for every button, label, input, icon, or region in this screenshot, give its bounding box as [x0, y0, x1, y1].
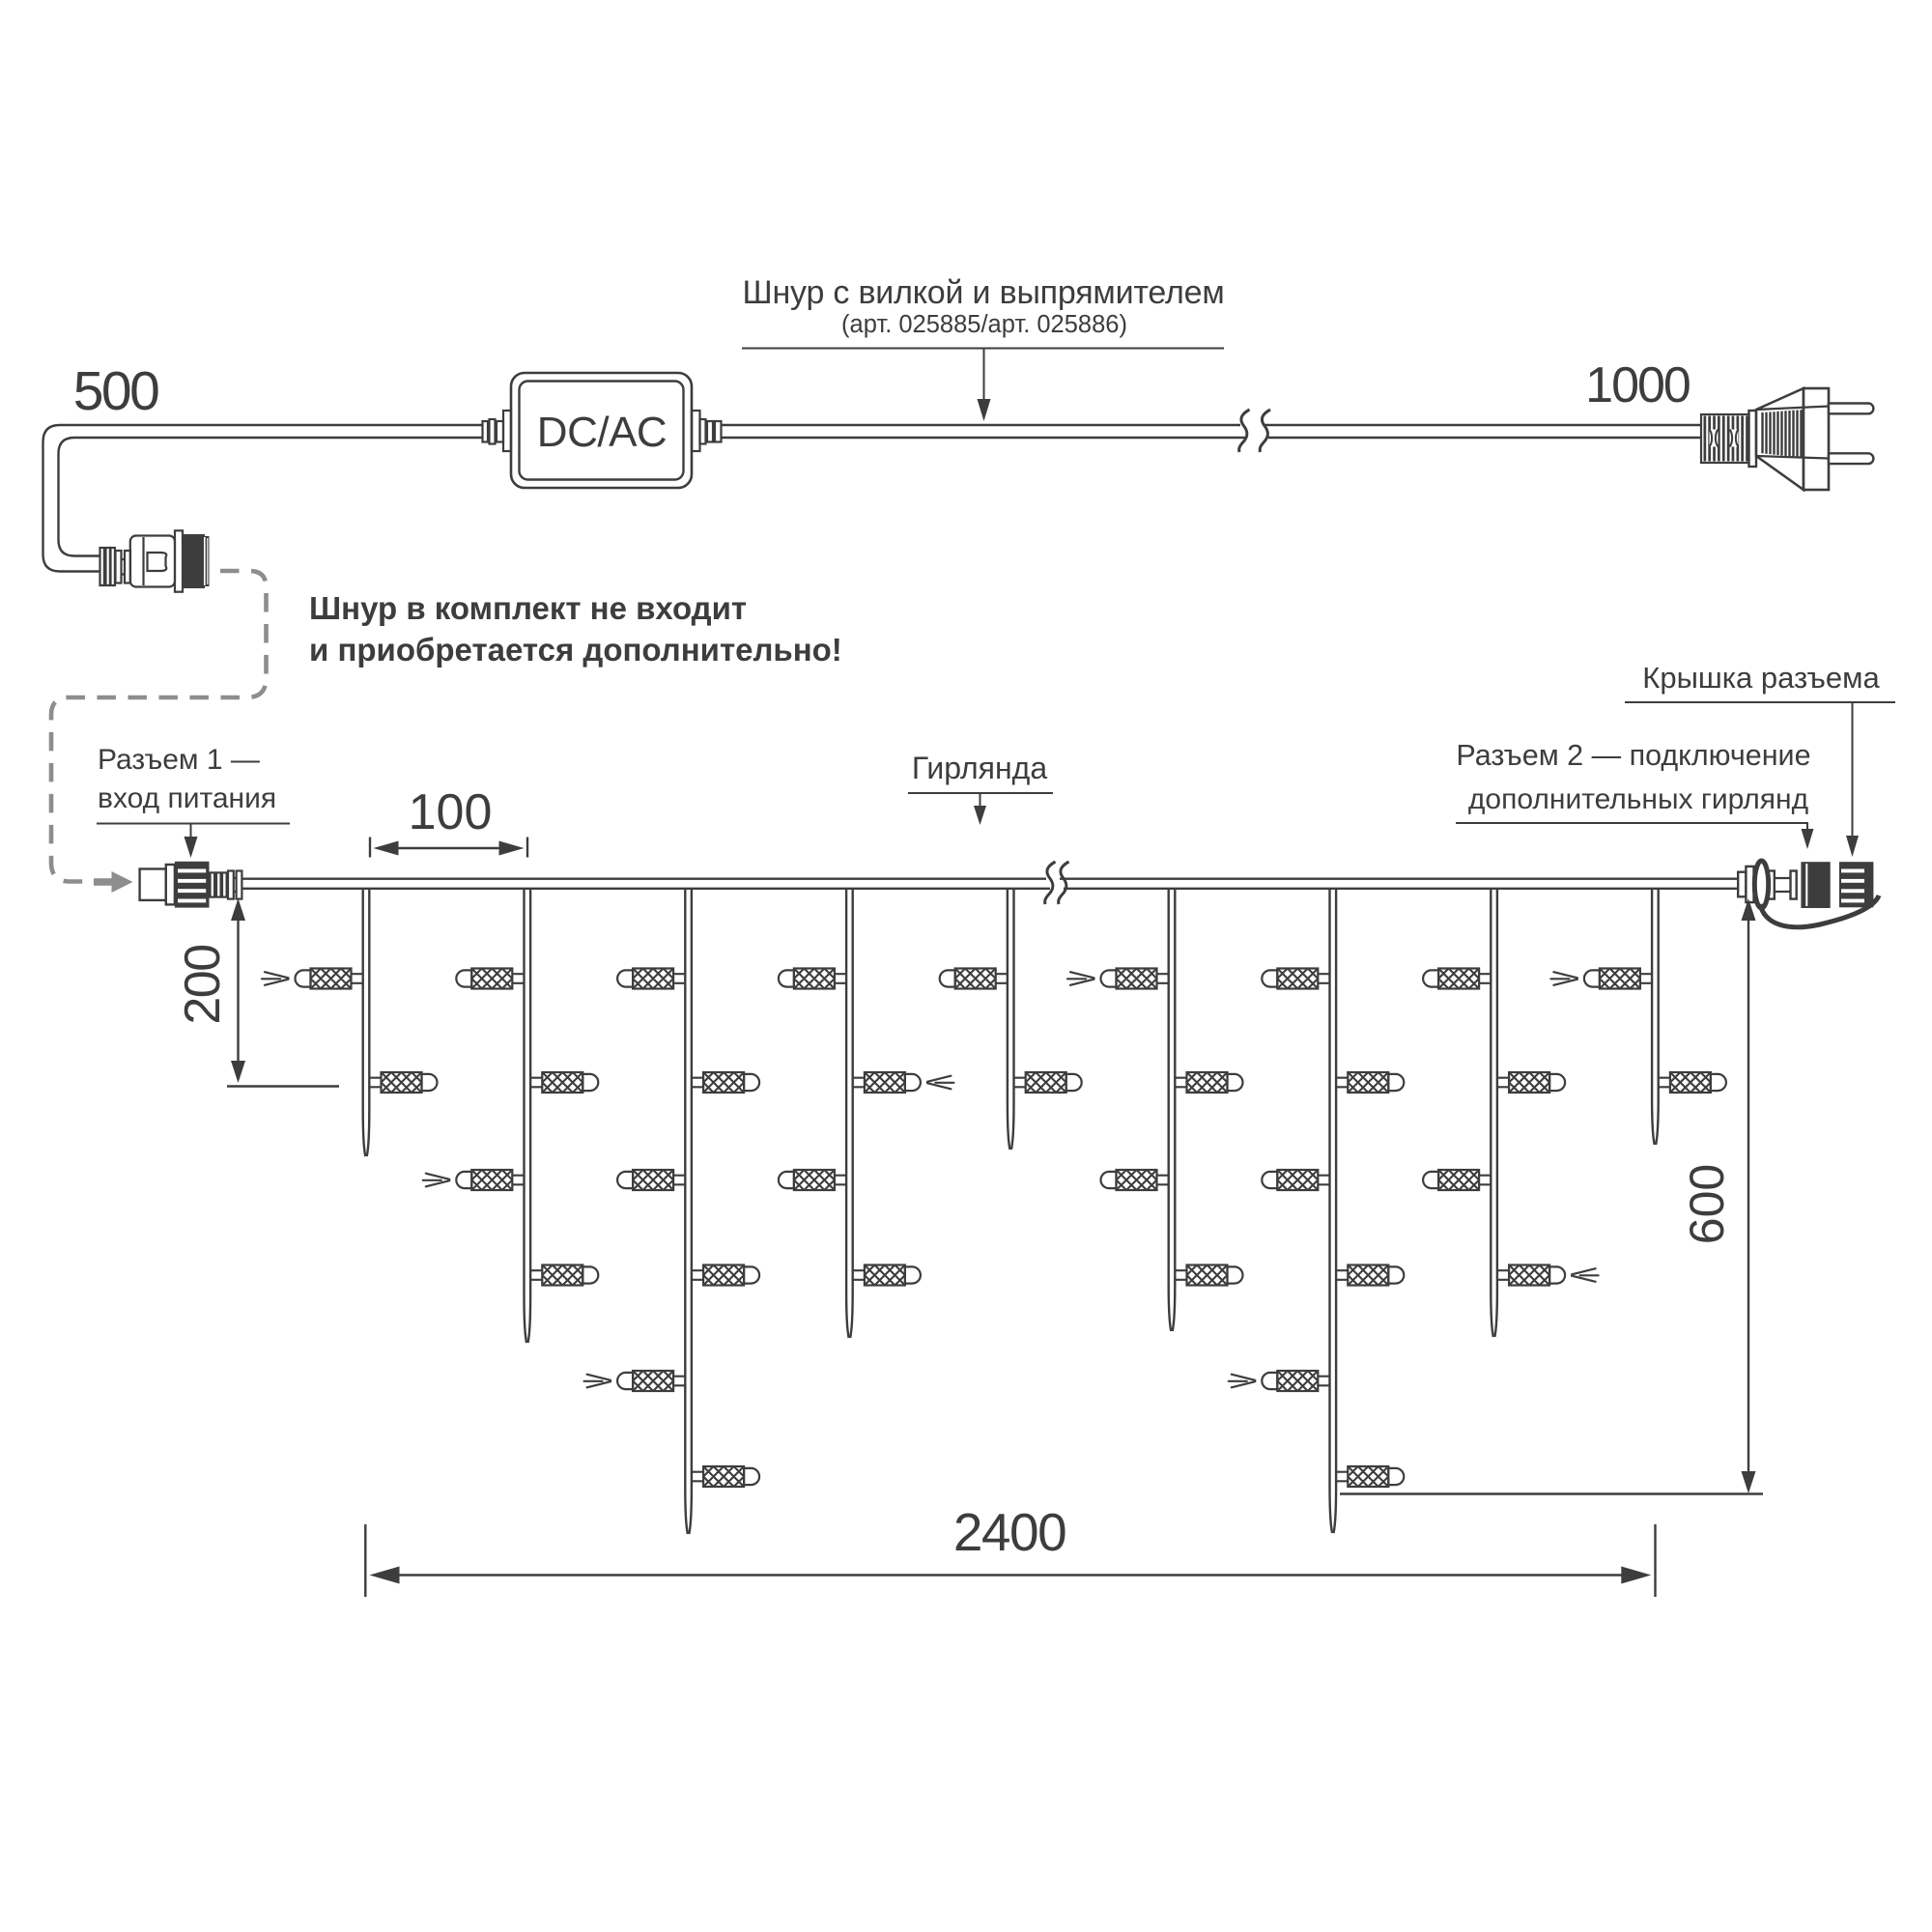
svg-text:100: 100: [409, 784, 493, 840]
svg-text:вход питания: вход питания: [98, 782, 276, 814]
svg-text:(арт. 025885/арт. 025886): (арт. 025885/арт. 025886): [841, 311, 1127, 338]
svg-text:DC/AC: DC/AC: [537, 409, 667, 456]
svg-text:Крышка разъема: Крышка разъема: [1642, 661, 1880, 695]
svg-text:Шнур с вилкой и выпрямителем: Шнур с вилкой и выпрямителем: [742, 274, 1224, 311]
svg-text:500: 500: [73, 360, 158, 422]
svg-text:600: 600: [1680, 1164, 1734, 1244]
svg-text:1000: 1000: [1585, 357, 1690, 413]
svg-text:дополнительных гирлянд: дополнительных гирлянд: [1468, 783, 1808, 815]
svg-text:200: 200: [175, 945, 231, 1024]
svg-text:Разъем 2 — подключение: Разъем 2 — подключение: [1456, 739, 1810, 772]
svg-text:Шнур в комплект не входит: Шнур в комплект не входит: [309, 590, 747, 626]
svg-text:Гирлянда: Гирлянда: [912, 751, 1047, 785]
svg-text:Разъем 1 —: Разъем 1 —: [98, 744, 260, 776]
svg-text:и приобретается дополнительно!: и приобретается дополнительно!: [309, 632, 842, 668]
svg-text:2400: 2400: [953, 1502, 1065, 1562]
